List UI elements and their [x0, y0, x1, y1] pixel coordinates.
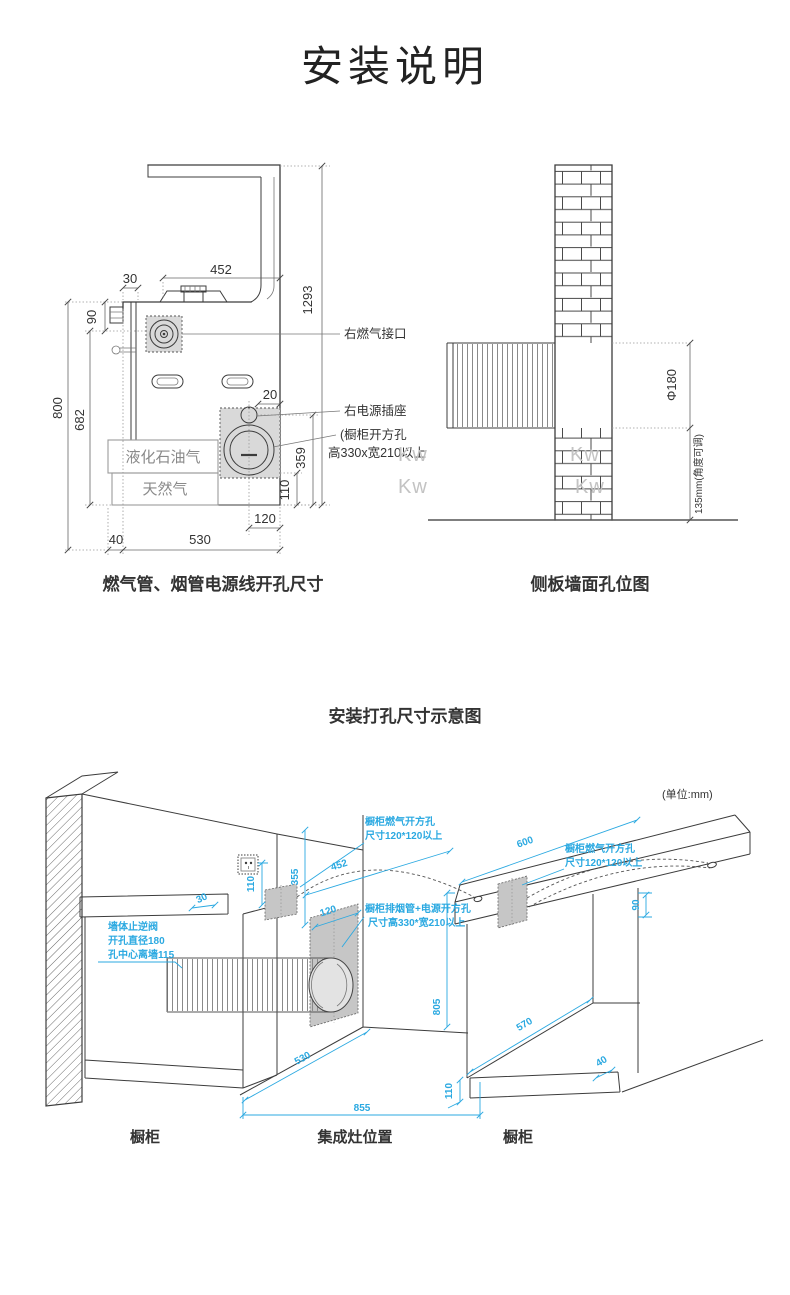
left-gas-hole-label-2: 尺寸120*120以上 — [365, 829, 442, 842]
flue-hole-label-1: 橱柜排烟管+电源开方孔 — [365, 902, 471, 915]
callout-labels: 右燃气接口 右电源插座 (橱柜开方孔 高330x宽210以上 — [182, 326, 426, 460]
isometric-drilling-diagram: 110 30 355 452 120 600 90 805 570 — [40, 755, 770, 1145]
corrugated-pipe — [167, 958, 353, 1012]
dim-40: 40 — [109, 532, 123, 547]
dim-355: 355 — [290, 868, 301, 885]
gas-type-boxes: 液化石油气 天然气 — [108, 440, 218, 505]
dim-452: 452 — [210, 262, 232, 277]
wall-hole-diagram: Φ180 135mm(角度可调) — [420, 145, 760, 565]
caption-stove-position: 集成灶位置 — [295, 1126, 415, 1147]
gas-hole-panel-right — [498, 876, 527, 928]
watermark: Kw — [398, 476, 428, 499]
gas-inlet-label: 右燃气接口 — [344, 326, 407, 341]
dim-diameter: Φ180 — [664, 369, 679, 401]
dim-40: 40 — [594, 1054, 610, 1069]
watermark: Kw — [570, 444, 600, 467]
dim-600: 600 — [516, 835, 536, 851]
burner — [160, 286, 227, 302]
dim-530: 530 — [189, 532, 211, 547]
lpg-label: 液化石油气 — [125, 449, 200, 466]
check-valve-label-1: 墙体止逆阀 — [108, 920, 158, 933]
flue-hole-label-2: 尺寸高330*宽210以上 — [368, 916, 465, 929]
dim-90: 90 — [84, 310, 99, 324]
right-gas-hole-label-1: 橱柜燃气开方孔 — [565, 842, 635, 855]
dim-20: 20 — [263, 387, 277, 402]
door-handles — [152, 375, 253, 388]
watermark: Kw — [398, 444, 428, 467]
gas-inlet-port — [146, 316, 182, 352]
caption-left-cabinet: 橱柜 — [115, 1126, 175, 1147]
dim-110: 110 — [277, 480, 292, 501]
watermark: Kw — [575, 476, 605, 499]
natural-gas-label: 天然气 — [142, 481, 187, 498]
dim-120: 120 — [254, 511, 276, 526]
dim-805: 805 — [432, 998, 443, 1015]
dim-855: 855 — [354, 1103, 371, 1114]
corrugated-duct — [447, 343, 555, 428]
dim-682: 682 — [72, 409, 87, 431]
duct-dimensions: Φ180 135mm(角度可调) — [612, 340, 705, 523]
dim-110-base: 110 — [444, 1082, 455, 1099]
dim-30: 30 — [123, 271, 137, 286]
dim-110-socket: 110 — [246, 875, 257, 892]
page-title: 安装说明 — [0, 33, 790, 94]
right-diagram-caption: 侧板墙面孔位图 — [500, 570, 680, 595]
check-valve-label-2: 开孔直径180 — [108, 934, 165, 947]
dim-800: 800 — [50, 397, 65, 419]
dim-height-adjustable: 135mm(角度可调) — [692, 434, 705, 514]
dimensions: 452 30 90 800 682 1293 20 359 — [50, 163, 330, 555]
dim-90: 90 — [631, 899, 642, 911]
right-gas-hole-label-2: 尺寸120*120以上 — [565, 856, 642, 869]
dim-30: 30 — [195, 891, 210, 906]
left-gas-hole-label-1: 橱柜燃气开方孔 — [365, 815, 435, 828]
cabinet-hole-label-1: (橱柜开方孔 — [340, 427, 407, 442]
power-socket-label: 右电源插座 — [344, 403, 407, 418]
power-socket — [238, 855, 258, 874]
dim-570: 570 — [515, 1016, 535, 1034]
left-diagram-caption: 燃气管、烟管电源线开孔尺寸 — [78, 570, 348, 595]
check-valve-label-3: 孔中心离墙115 — [108, 948, 175, 961]
dim-1293: 1293 — [300, 286, 315, 315]
dim-530: 530 — [293, 1050, 313, 1068]
dim-359: 359 — [293, 447, 308, 469]
caption-right-cabinet: 橱柜 — [488, 1126, 548, 1147]
bottom-diagram-title: 安装打孔尺寸示意图 — [255, 702, 555, 727]
stove-side-view-diagram: 液化石油气 天然气 452 30 90 800 682 — [60, 145, 480, 565]
